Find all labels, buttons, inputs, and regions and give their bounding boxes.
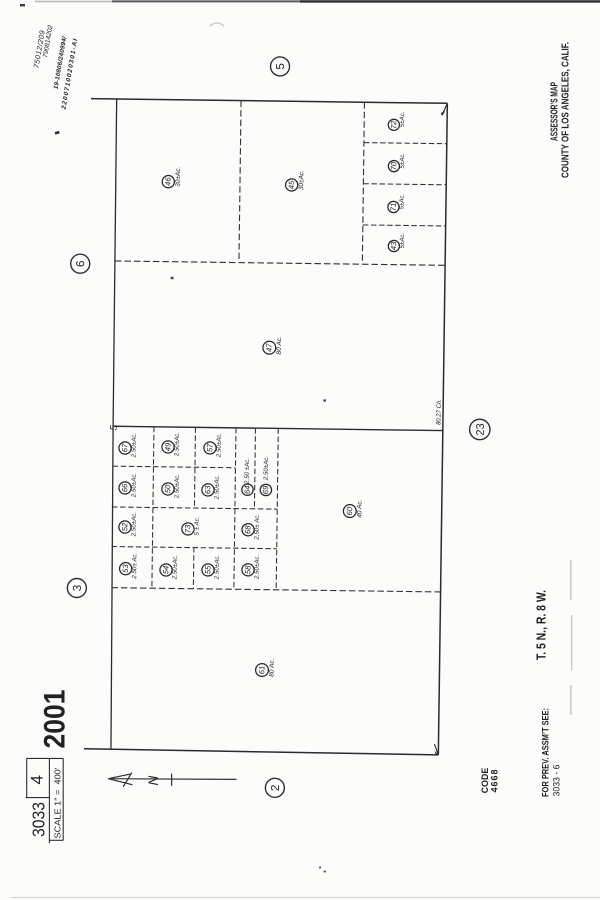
svg-text:4: 4 bbox=[28, 775, 47, 784]
svg-text:30±Ac.: 30±Ac. bbox=[175, 166, 182, 186]
svg-text:80 Ac.: 80 Ac. bbox=[269, 658, 276, 677]
svg-text:2.50±Ac.: 2.50±Ac. bbox=[173, 474, 180, 499]
svg-text:43: 43 bbox=[389, 241, 398, 250]
svg-text:68: 68 bbox=[243, 525, 252, 534]
svg-text:2.50±Ac.: 2.50±Ac. bbox=[213, 475, 220, 500]
svg-text:53: 53 bbox=[121, 564, 130, 573]
svg-text:66: 66 bbox=[120, 483, 129, 492]
svg-text:63: 63 bbox=[203, 485, 212, 494]
svg-text:54: 54 bbox=[161, 566, 170, 575]
svg-text:2.50 ±Ac.: 2.50 ±Ac. bbox=[244, 458, 251, 485]
svg-text:46: 46 bbox=[164, 177, 173, 186]
svg-text:55: 55 bbox=[203, 565, 212, 574]
svg-text:2.50± Ac.: 2.50± Ac. bbox=[131, 553, 138, 580]
svg-text:3033 - 6: 3033 - 6 bbox=[552, 764, 562, 796]
svg-text:CODE: CODE bbox=[480, 768, 490, 794]
svg-text:2.50±Ac.: 2.50±Ac. bbox=[130, 473, 137, 498]
svg-text:5: 5 bbox=[275, 63, 287, 70]
svg-text:49: 49 bbox=[163, 442, 172, 451]
svg-text:5±Ac.: 5±Ac. bbox=[399, 111, 406, 127]
svg-text:61: 61 bbox=[257, 666, 266, 675]
svg-text:COUNTY OF LOS ANGELES, CALIF.: COUNTY OF LOS ANGELES, CALIF. bbox=[561, 42, 572, 178]
svg-text:60: 60 bbox=[345, 506, 354, 515]
svg-text:40 Ac.: 40 Ac. bbox=[356, 499, 363, 518]
svg-text:5 ± Ac.: 5 ± Ac. bbox=[193, 517, 200, 536]
svg-text:70: 70 bbox=[389, 161, 398, 170]
svg-text:FOR PREV. ASSM’T SEE:: FOR PREV. ASSM’T SEE: bbox=[541, 708, 551, 797]
svg-text:3033: 3033 bbox=[29, 802, 49, 837]
svg-text:2.50±Ac.: 2.50±Ac. bbox=[173, 432, 180, 457]
svg-text:2.50±Ac.: 2.50±Ac. bbox=[253, 555, 260, 580]
svg-text:5±Ac.: 5±Ac. bbox=[399, 153, 406, 169]
svg-text:23: 23 bbox=[475, 423, 487, 435]
svg-text:80 Ac.: 80 Ac. bbox=[276, 336, 283, 355]
svg-text:58: 58 bbox=[243, 565, 252, 574]
svg-text:2.50± Ac.: 2.50± Ac. bbox=[254, 514, 261, 541]
svg-text:69: 69 bbox=[261, 485, 270, 494]
svg-text:67: 67 bbox=[120, 443, 129, 452]
svg-text:2.50±Ac.: 2.50±Ac. bbox=[130, 512, 137, 537]
svg-text:57: 57 bbox=[205, 443, 214, 452]
svg-text:5±Ac.: 5±Ac. bbox=[398, 194, 405, 210]
svg-text:2.50±Ac.: 2.50±Ac. bbox=[263, 456, 270, 481]
svg-text:SCALE 1″ = 400′: SCALE 1″ = 400′ bbox=[53, 767, 63, 838]
svg-text:3: 3 bbox=[72, 585, 84, 592]
svg-text:52: 52 bbox=[120, 522, 129, 531]
svg-text:2.50±Ac.: 2.50±Ac. bbox=[213, 555, 220, 580]
svg-text:45: 45 bbox=[287, 180, 296, 189]
svg-text:2.50±Ac.: 2.50±Ac. bbox=[171, 555, 178, 580]
svg-text:2001: 2001 bbox=[39, 690, 72, 749]
svg-text:4668: 4668 bbox=[490, 768, 500, 792]
svg-text:80.27 Ch.: 80.27 Ch. bbox=[436, 399, 443, 425]
svg-text:64: 64 bbox=[243, 485, 252, 494]
svg-text:71: 71 bbox=[389, 203, 398, 212]
svg-text:30±Ac.: 30±Ac. bbox=[298, 170, 305, 190]
svg-text:2.50±Ac.: 2.50±Ac. bbox=[130, 433, 137, 458]
svg-text:ASSESSOR’S MAP: ASSESSOR’S MAP bbox=[550, 82, 561, 141]
svg-text:5±Ac.: 5±Ac. bbox=[399, 233, 406, 249]
svg-text:50: 50 bbox=[163, 484, 172, 493]
svg-text:2.50±Ac.: 2.50±Ac. bbox=[215, 433, 222, 458]
svg-text:T. 5 N., R. 8 W.: T. 5 N., R. 8 W. bbox=[534, 590, 549, 660]
svg-text:73: 73 bbox=[183, 524, 192, 533]
svg-text:2: 2 bbox=[270, 785, 282, 792]
svg-text:N: N bbox=[146, 776, 161, 786]
svg-text:6: 6 bbox=[75, 260, 87, 267]
svg-text:47: 47 bbox=[265, 343, 274, 352]
svg-text:72: 72 bbox=[389, 120, 398, 129]
svg-text:5: 5 bbox=[108, 424, 119, 430]
